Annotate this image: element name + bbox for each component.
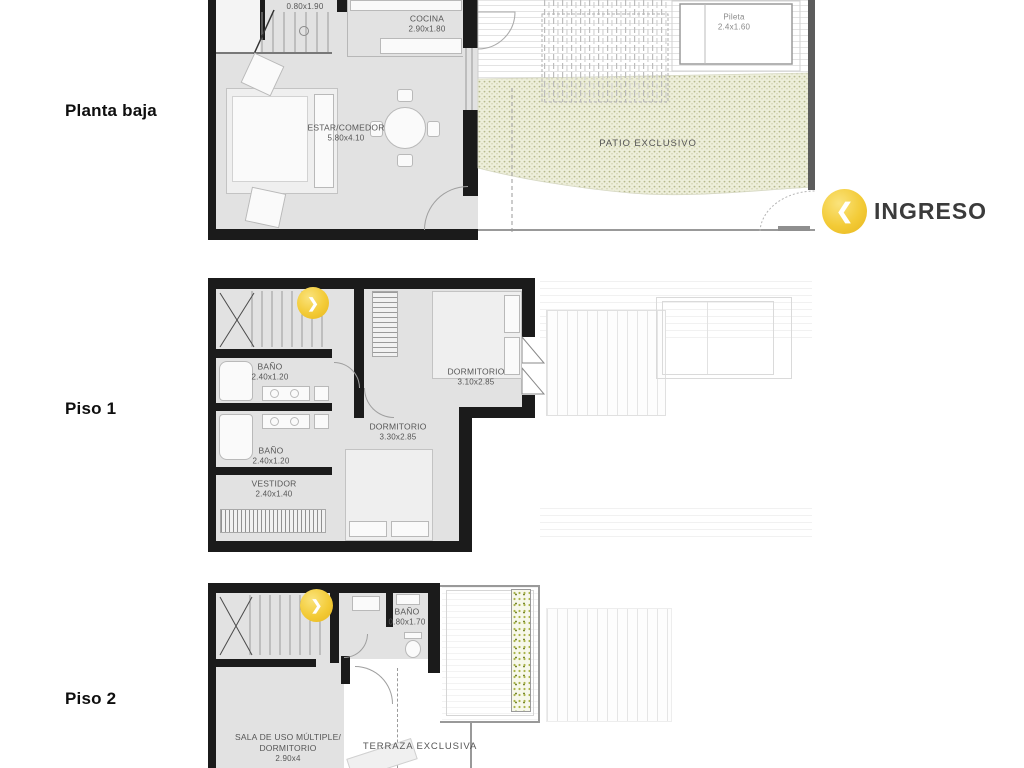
pb-chair-right: [427, 121, 440, 137]
pb-patio-label: PATIO EXCLUSIVO: [599, 138, 697, 150]
pb-wall-right-top: [463, 0, 478, 48]
p2-wall-left: [208, 583, 216, 768]
pb-window-line-2: [471, 48, 473, 110]
p1-bano2-tub: [219, 414, 253, 460]
p2-planter: [511, 589, 531, 712]
p1-closet-hatch: [220, 509, 326, 533]
p1-wall-jog: [459, 407, 535, 418]
p2-ghost-stripes: [546, 608, 672, 722]
p1-stair-marker: ❯: [297, 287, 329, 319]
p2-bano-sink: [396, 594, 420, 605]
p2-sala-label: SALA DE USO MÚLTIPLE/DORMITORIO2.90x4: [235, 732, 341, 764]
pb-kitchen-island: [380, 38, 462, 54]
pb-wall-left: [208, 0, 216, 240]
p1-wall-bottom: [208, 541, 472, 552]
p1-dormitorio1-label: DORMITORIO3.10x2.85: [447, 366, 504, 387]
p1-bano1-sink-2: [290, 389, 299, 398]
pb-cocina-label: COCINA2.90x1.80: [409, 13, 446, 34]
p2-wall-under-stairs: [216, 659, 316, 667]
ingreso-icon: ❮: [822, 189, 867, 234]
pb-dining-table: [384, 107, 426, 149]
p1-wall-right-lower: [459, 418, 472, 552]
p2-toilet-tank: [404, 632, 422, 639]
p1-bano2-sink-2: [290, 417, 299, 426]
p1-bed-1-pillow-2: [504, 337, 520, 375]
p2-door-arc-terraza: [355, 666, 393, 704]
p1-wardrobe-hatch: [372, 291, 398, 357]
p1-bano2-toilet: [314, 414, 329, 429]
chevron-left-icon: ❮: [836, 199, 854, 224]
pb-chair-bottom: [397, 154, 413, 167]
p1-bano1-label: BAÑO2.40x1.20: [252, 361, 289, 382]
pb-pileta-label: Pileta2.4x1.60: [718, 13, 750, 34]
p1-wall-right-upper: [522, 278, 535, 337]
floorplan-canvas: Planta baja Piso 1 Piso 2: [0, 0, 1024, 768]
p1-ghost-pileta-inner: [662, 301, 774, 375]
chevron-right-icon: ❯: [307, 295, 319, 312]
p1-wall-top: [208, 278, 535, 289]
p2-stair-marker: ❯: [300, 589, 333, 622]
floor-title-piso-2: Piso 2: [65, 689, 116, 709]
p2-terraza-label: TERRAZA EXCLUSIVA: [363, 741, 477, 753]
pb-wall-right-mid: [463, 110, 478, 196]
ingreso-label: INGRESO: [874, 198, 987, 225]
pb-kitchen-counter: [350, 0, 462, 11]
p1-bano2-sink-1: [270, 417, 279, 426]
p1-bano1-tub: [219, 361, 253, 401]
pb-window-line-1: [465, 48, 467, 110]
p1-bed-2-pillow-1: [349, 521, 387, 537]
p1-vestidor-label: VESTIDOR2.40x1.40: [251, 478, 296, 499]
pb-toilette-label: 0.80x1.90: [287, 2, 324, 12]
p1-wall-bano-divider-1: [216, 403, 332, 411]
p2-toilet-bowl: [405, 640, 421, 658]
p1-ghost-deck: [546, 310, 666, 416]
pb-exterior: [478, 0, 820, 240]
p1-bano2-label: BAÑO2.40x1.20: [253, 445, 290, 466]
pb-pouf-2: [245, 187, 287, 229]
p1-dormitorio2-label: DORMITORIO3.30x2.85: [369, 421, 426, 442]
p2-bano-label: BAÑO0.80x1.70: [389, 606, 426, 627]
floor-title-piso-1: Piso 1: [65, 399, 116, 419]
pb-estar-label: ESTAR/COMEDOR5.80x4.10: [307, 122, 384, 143]
p1-bano1-sink-1: [270, 389, 279, 398]
p2-wall-right: [428, 583, 440, 673]
p1-bano1-toilet: [314, 386, 329, 401]
p1-wall-corridor: [354, 289, 364, 418]
chevron-right-icon: ❯: [311, 597, 323, 614]
p1-bed-1-pillow-1: [504, 295, 520, 333]
p2-washer: [352, 596, 380, 611]
p1-wall-left: [208, 278, 216, 552]
p1-wall-bano-divider-2: [216, 467, 332, 475]
p2-wall-hall-stub: [341, 656, 350, 684]
pb-sofa-seat: [232, 96, 308, 182]
p1-balcony-door-icon: [520, 335, 546, 397]
pb-wall-kitchen-stub: [337, 0, 347, 12]
p1-ghost-stripes-bottom: [540, 508, 812, 542]
pb-wall-bottom: [208, 229, 478, 240]
pb-chair-top: [397, 89, 413, 102]
p1-bed-2-pillow-2: [391, 521, 429, 537]
floor-title-planta-baja: Planta baja: [65, 101, 157, 121]
